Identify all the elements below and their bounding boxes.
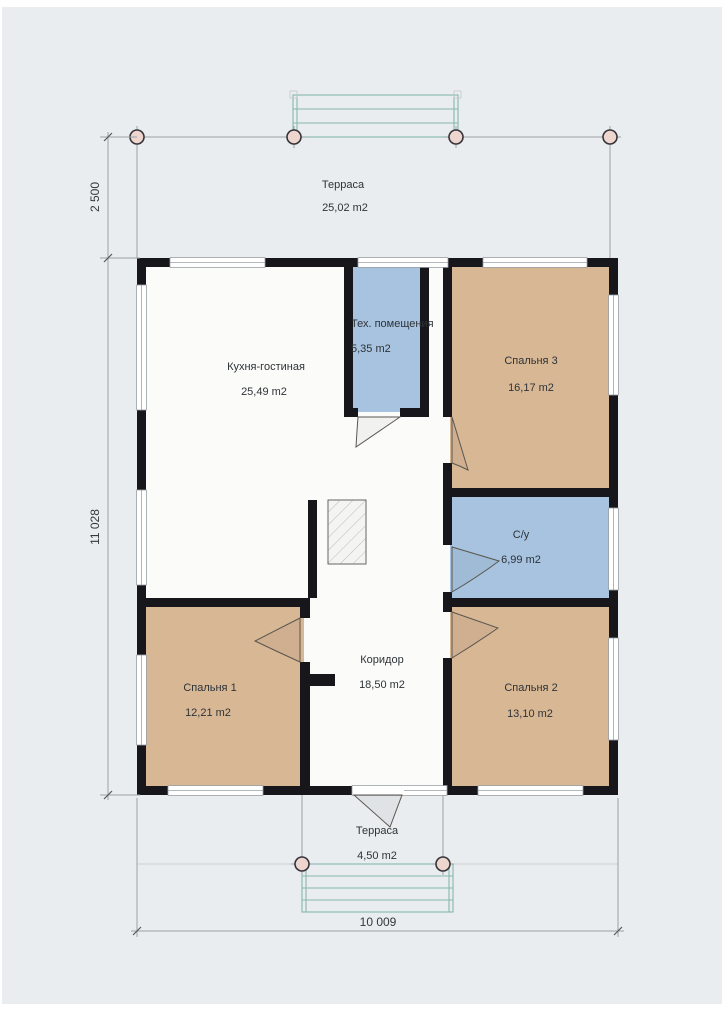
room-bathroom [450, 493, 614, 602]
label-kitchen-living: Кухня-гостиная [227, 361, 305, 373]
area-bedroom-1: 12,21 m2 [185, 707, 231, 719]
label-corridor: Коридор [360, 654, 403, 666]
floor-plan-svg: 2 500 11 028 10 009 Терраса 25,02 m2 Кух… [0, 0, 724, 1024]
wall-bath-bed2 [443, 598, 618, 607]
wall-corridor-right-1 [443, 258, 452, 417]
label-bedroom-3: Спальня 3 [504, 355, 557, 367]
wall-corridor-right-4 [443, 658, 452, 795]
floor-plan-page: 2 500 11 028 10 009 Терраса 25,02 m2 Кух… [0, 0, 724, 1024]
dimension-terrace-depth: 2 500 [88, 182, 102, 212]
area-bedroom-2: 13,10 m2 [507, 708, 553, 720]
wall-tech-corridor [420, 267, 429, 417]
chimney-shaft [328, 500, 366, 564]
label-terrace-bottom: Терраса [356, 825, 399, 837]
wall-corridor-left-stub [308, 500, 317, 598]
room-bedroom-3 [450, 262, 614, 492]
wall-kitchen-bed1 [137, 598, 308, 607]
wall-kitchen-tech [344, 258, 353, 417]
area-terrace-top: 25,02 m2 [322, 202, 368, 214]
area-kitchen-living: 25,49 m2 [241, 386, 287, 398]
dimension-house-depth: 11 028 [88, 509, 102, 545]
dimension-house-width: 10 009 [360, 915, 397, 929]
wall-tech-bottom-b [400, 408, 429, 417]
area-corridor: 18,50 m2 [359, 679, 405, 691]
label-bedroom-2: Спальня 2 [504, 682, 557, 694]
label-bedroom-1: Спальня 1 [183, 682, 236, 694]
wall-bed3-bath [443, 488, 618, 497]
wall-corridor-right-2 [443, 463, 452, 545]
label-bathroom: С/у [513, 529, 530, 541]
wall-closet-stub [300, 674, 335, 686]
wall-tech-bottom-a [344, 408, 358, 417]
area-bathroom: 6,99 m2 [501, 554, 541, 566]
wall-bed1-right-1 [300, 598, 310, 618]
area-tech-room: 5,35 m2 [351, 343, 391, 355]
area-terrace-bottom: 4,50 m2 [357, 850, 397, 862]
label-terrace-top: Терраса [322, 179, 365, 191]
room-tech [348, 262, 422, 412]
area-bedroom-3: 16,17 m2 [508, 382, 554, 394]
label-tech-room: Тех. помещения [351, 318, 434, 330]
